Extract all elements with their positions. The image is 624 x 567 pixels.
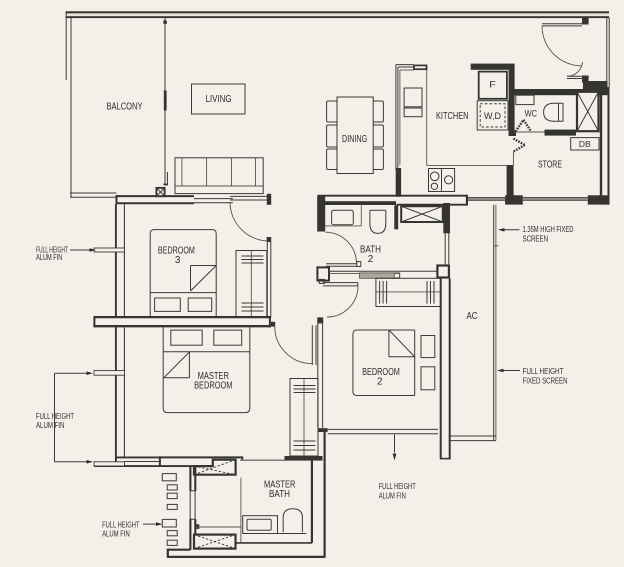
svg-text:WC: WC: [525, 108, 538, 118]
svg-text:BEDROOM: BEDROOM: [194, 380, 232, 391]
svg-text:DINING: DINING: [342, 134, 367, 145]
svg-text:FULL HEIGHT: FULL HEIGHT: [36, 412, 74, 421]
svg-text:FIXED SCREEN: FIXED SCREEN: [523, 377, 568, 386]
svg-text:SCREEN: SCREEN: [523, 235, 549, 244]
svg-text:BATH: BATH: [269, 489, 290, 500]
svg-text:F: F: [489, 80, 496, 90]
svg-text:2: 2: [377, 377, 383, 388]
svg-text:FULL HEIGHT: FULL HEIGHT: [102, 520, 139, 529]
svg-text:3: 3: [175, 255, 181, 266]
svg-text:1.35M HIGH FIXED: 1.35M HIGH FIXED: [523, 225, 574, 234]
svg-text:ALUM FIN: ALUM FIN: [36, 421, 65, 430]
svg-text:STORE: STORE: [538, 160, 562, 171]
svg-text:2: 2: [368, 254, 374, 265]
svg-text:FULL HEIGHT: FULL HEIGHT: [379, 482, 416, 491]
svg-text:LIVING: LIVING: [206, 94, 232, 105]
svg-text:ALUM FIN: ALUM FIN: [36, 253, 62, 262]
svg-text:ALUM FIN: ALUM FIN: [102, 530, 130, 539]
svg-text:FULL HEIGHT: FULL HEIGHT: [523, 367, 564, 376]
svg-text:KITCHEN: KITCHEN: [436, 111, 469, 122]
svg-text:W,D: W,D: [484, 111, 501, 121]
svg-text:AC: AC: [467, 311, 478, 322]
svg-text:ALUM FIN: ALUM FIN: [379, 491, 406, 500]
svg-text:DB: DB: [579, 139, 591, 149]
svg-text:BALCONY: BALCONY: [107, 102, 143, 113]
